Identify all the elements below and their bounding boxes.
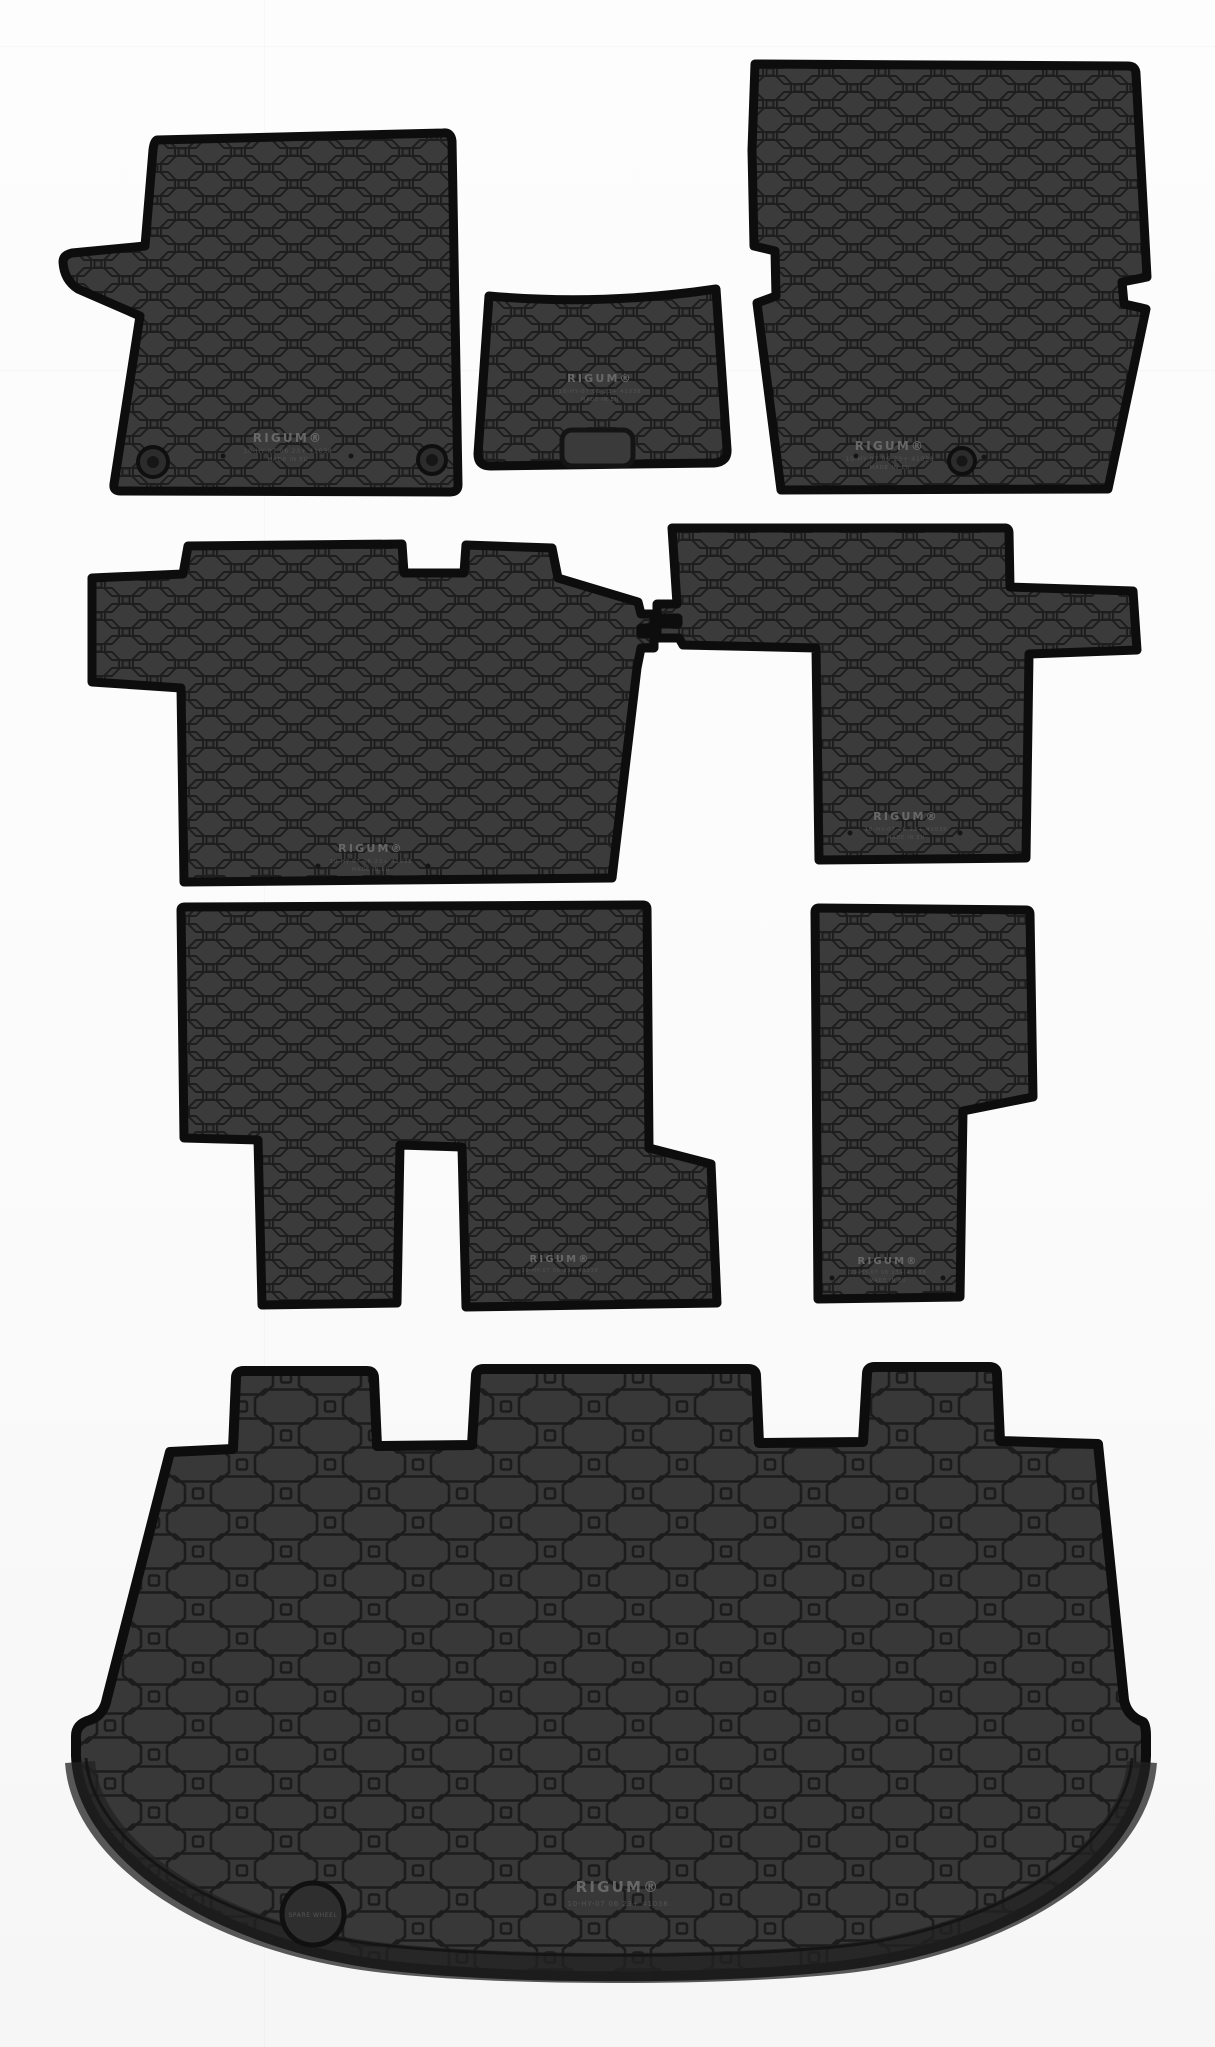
spare-wheel-label: SPARE WHEEL <box>289 1912 338 1919</box>
third-row-left-brand-emboss: RIGUM® <box>530 1254 591 1265</box>
front-left-mat: RIGUM® 10-HY-07 06 23+ 41038 MADE IN EU <box>63 133 458 492</box>
front-right-part-number: 10-HY-07 06 23+ 41038 <box>846 456 935 463</box>
centre-tunnel-brand-emboss: RIGUM® <box>567 372 633 385</box>
second-row-right-origin-text: MADE IN EU <box>887 835 925 841</box>
product-photo: RIGUM® 10-HY-07 06 23+ 41038 MADE IN EU … <box>0 0 1215 2047</box>
trunk-part-number: 10-HY-07 06 23+ 41038 <box>568 1900 669 1908</box>
third-row-left-part-number: 10-HY-07 06 23+ 41038 <box>522 1268 599 1274</box>
second-row-right-part-number: 10-HY-07 06 23+ 41038 <box>865 827 948 833</box>
trunk-brand-emboss: RIGUM® <box>576 1878 661 1896</box>
centre-tunnel-origin-text: MADE IN EU <box>581 397 619 403</box>
second-row-left-mat-body <box>92 544 654 882</box>
front-left-origin-text: MADE IN EU <box>268 457 309 463</box>
second-row-right-mat: RIGUM® 10-HY-07 06 23+ 41038 MADE IN EU <box>657 528 1137 860</box>
third-row-left-mat-body <box>181 905 717 1307</box>
front-right-mat: RIGUM® 10-HY-07 06 23+ 41038 MADE IN EU <box>752 64 1147 490</box>
front-left-part-number: 10-HY-07 06 23+ 41038 <box>244 448 333 455</box>
spare-wheel-cap: SPARE WHEEL <box>282 1883 344 1945</box>
mat-set-illustration: RIGUM® 10-HY-07 06 23+ 41038 MADE IN EU … <box>0 0 1215 2047</box>
centre-tunnel-raised-pad <box>562 430 633 466</box>
second-row-left-part-number: 10-HY-07 06 23+ 41038 <box>330 859 413 865</box>
front-right-brand-emboss: RIGUM® <box>855 439 925 453</box>
second-row-left-mat: RIGUM® 10-HY-07 06 23+ 41038 MADE IN EU <box>92 544 654 882</box>
centre-tunnel-mat: RIGUM® 10-HY-07 06 23+ 41038 MADE IN EU <box>478 289 727 466</box>
third-row-right-mat-body <box>815 908 1033 1299</box>
front-left-brand-emboss: RIGUM® <box>253 431 323 445</box>
third-row-right-brand-emboss: RIGUM® <box>858 1256 919 1267</box>
third-row-left-mat: RIGUM® 10-HY-07 06 23+ 41038 <box>181 905 717 1307</box>
second-row-left-origin-text: MADE IN EU <box>352 867 390 873</box>
third-row-right-part-number: 10-HY-07 06 23+ 41038 <box>850 1270 927 1276</box>
third-row-right-origin-text: MADE IN EU <box>870 1278 907 1284</box>
centre-tunnel-part-number: 10-HY-07 06 23+ 41038 <box>559 389 642 395</box>
third-row-right-mat: RIGUM® 10-HY-07 06 23+ 41038 MADE IN EU <box>815 908 1033 1299</box>
front-right-origin-text: MADE IN EU <box>870 465 911 471</box>
trunk-tray-mat: SPARE WHEEL RIGUM® 10-HY-07 06 23+ 41038 <box>76 1367 1146 1976</box>
second-row-left-brand-emboss: RIGUM® <box>338 842 404 855</box>
second-row-right-brand-emboss: RIGUM® <box>873 810 939 823</box>
front-right-mat-body <box>752 64 1147 490</box>
